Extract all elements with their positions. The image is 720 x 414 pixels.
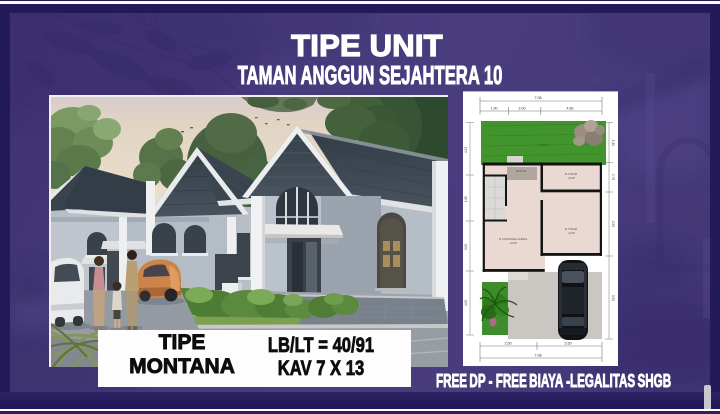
svg-text:2.50: 2.50 [611,221,615,227]
svg-text:1.80: 1.80 [464,196,468,202]
svg-text:1.80: 1.80 [611,140,615,146]
svg-text:+0.05: +0.05 [567,176,575,180]
svg-text:2.00: 2.00 [519,107,526,111]
svg-text:4.80: 4.80 [567,107,574,111]
svg-text:4.23: 4.23 [464,147,468,153]
svg-text:7.08: 7.08 [535,96,542,100]
svg-text:TAMAN: TAMAN [538,143,548,147]
svg-text:4.00: 4.00 [464,300,468,306]
svg-text:DAPUR: DAPUR [516,169,527,173]
svg-text:3.50: 3.50 [565,342,572,346]
svg-text:2.50: 2.50 [505,342,512,346]
svg-text:2.78: 2.78 [611,174,615,180]
svg-text:3.50: 3.50 [611,295,615,301]
svg-text:+0.05: +0.05 [567,231,575,235]
svg-text:7.08: 7.08 [535,354,542,358]
svg-text:+0.05: +0.05 [509,241,517,245]
svg-text:1.90: 1.90 [491,107,498,111]
svg-text:3.00: 3.00 [464,244,468,250]
